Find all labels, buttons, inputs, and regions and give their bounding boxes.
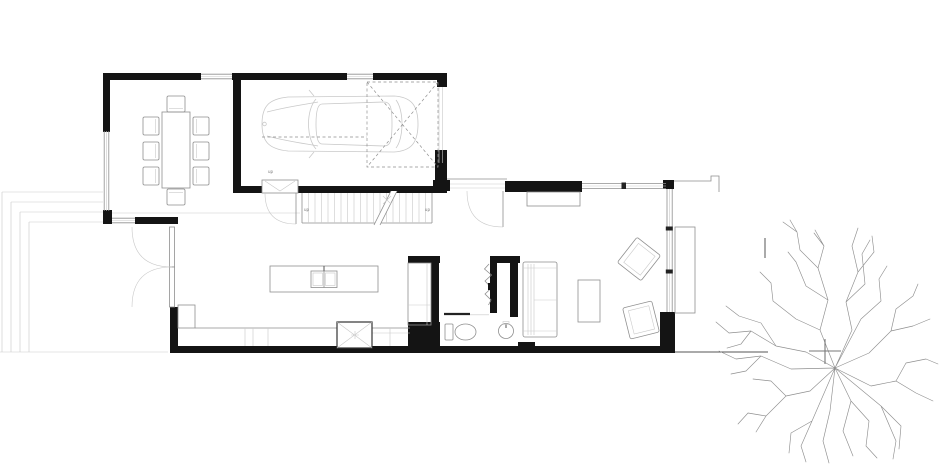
staircase: up up xyxy=(302,191,432,225)
wc xyxy=(444,264,514,340)
round-basin xyxy=(499,322,514,339)
window-dining-north xyxy=(201,74,232,79)
kitchen-island xyxy=(270,266,378,292)
entry xyxy=(447,179,507,227)
car-plan-view xyxy=(262,90,418,158)
coffee-table xyxy=(578,280,600,322)
terrace-steps xyxy=(0,192,168,352)
exterior-planter xyxy=(675,227,695,313)
sofa xyxy=(523,262,557,337)
cooktop xyxy=(337,322,372,348)
pocket-door xyxy=(444,314,489,315)
counter-run xyxy=(178,305,410,346)
window-garage-north xyxy=(347,74,373,79)
french-doors xyxy=(132,227,175,307)
fence-line-northeast xyxy=(668,176,719,192)
stair-label-bottom: up xyxy=(304,207,310,212)
kitchen xyxy=(178,263,431,348)
garage-door-threshold: up xyxy=(262,169,298,193)
tall-cabinet xyxy=(408,263,431,325)
door-handle xyxy=(488,283,495,290)
stair-break xyxy=(374,191,397,225)
threshold-label: up xyxy=(268,169,274,174)
stair-label-top: up xyxy=(425,207,431,212)
ground-line-east xyxy=(675,238,768,352)
window-dining-west xyxy=(104,131,109,211)
armchair-1 xyxy=(617,237,660,281)
toilet xyxy=(445,324,476,340)
tree-trunk-mark xyxy=(809,339,841,364)
garage: up xyxy=(262,82,443,224)
entry-door-swing xyxy=(450,184,505,227)
hall-door-swing xyxy=(265,193,296,224)
armchair-2 xyxy=(623,301,660,339)
dining-chairs xyxy=(143,96,209,205)
dining-set xyxy=(112,96,300,213)
sideboard xyxy=(527,192,580,206)
floor-plan-page: up up up xyxy=(0,0,940,466)
window-dining-southwest xyxy=(112,218,135,223)
garage-door-dashed-panel xyxy=(262,82,443,167)
floor-plan-drawing: up up up xyxy=(0,0,940,466)
tree-plan-symbol xyxy=(716,220,938,463)
window-living-east xyxy=(666,189,673,312)
window-living-north xyxy=(582,183,666,190)
dining-table xyxy=(162,112,190,188)
